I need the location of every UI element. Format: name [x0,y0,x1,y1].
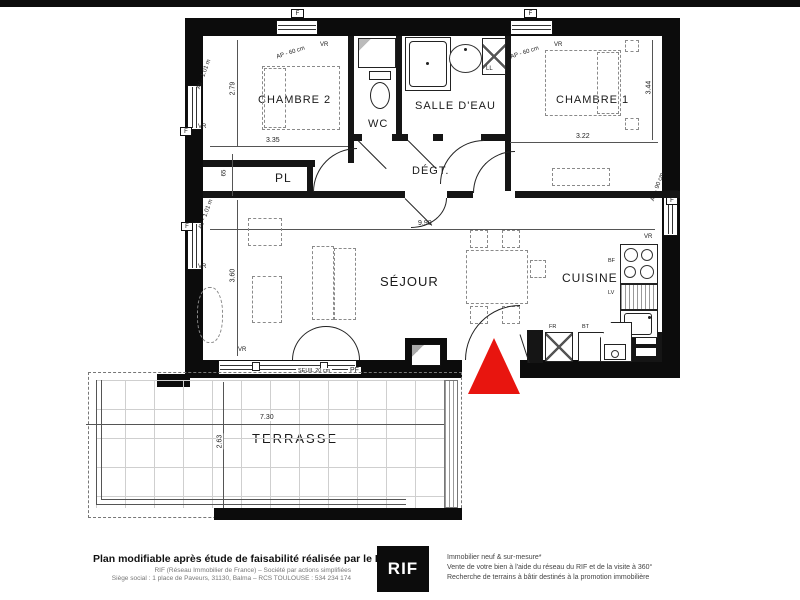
sofa-back [312,246,334,320]
floor-plan-page: F VR AP - 60 cm F VR AP - 60 cm F AV - 1… [0,0,800,600]
bay-window-handle [252,362,260,371]
footer-address-line: Siège social : 1 place de Paveurs, 31130… [93,575,351,583]
desk-chambre1 [552,168,610,186]
nightstand [625,118,639,130]
room-label-salle-deau: SALLE D'EAU [415,100,496,112]
burner-icon [640,265,654,279]
chair [530,260,546,278]
vr-label: VR [198,264,206,270]
bed-pillow-chambre1 [597,52,619,114]
dim-line [237,40,238,146]
burner-icon [624,266,636,278]
fridge [545,332,573,362]
wall-chambre2-bottom [203,160,315,167]
window-top-2 [510,20,553,35]
wall-corridor-bottom [447,191,473,198]
vr-label: VR [554,42,562,48]
window-top-2-sill2 [512,29,551,30]
sofa-seat [334,248,356,320]
dim-terrasse-depth: 2.63 [216,434,223,450]
dim-terrasse-width: 7.30 [258,414,276,421]
door-leaf-wc [358,140,387,169]
window-left-1-sill [192,87,193,128]
rif-logo-text: RIF [388,559,418,579]
tv-screen [411,344,441,366]
room-label-placard: PL [275,171,292,185]
washbasin-tap [464,48,467,51]
dim-line [237,200,238,356]
dim-chambre1-height: 3.44 [645,81,652,95]
wall-kitchen-stub [527,330,543,363]
dim-chambre2-width: 3.35 [266,137,280,144]
terrace-bottom-wall [214,508,462,520]
dim-chambre1-width: 3.22 [576,133,590,140]
wall-corridor-top [392,134,408,141]
burner-icon [641,249,653,261]
window-top-2-sill [512,25,551,26]
footer-right-block: Immobilier neuf & sur-mesure* Vente de v… [447,553,697,583]
toilet-tank [369,71,391,80]
footer-service-3: Recherche de terrains à bâtir destinés à… [447,573,697,583]
wall-corridor-bottom [203,191,405,198]
window-top-1 [276,20,318,35]
side-table [248,218,282,246]
sink-tap [648,316,651,319]
vr-label: VR [320,42,328,48]
wall-chambre2-wc [348,36,354,163]
door-arc-chambre2 [313,148,357,192]
french-door-arc-left [292,326,326,360]
rif-logo: RIF [377,546,429,592]
french-door-arc-right [326,326,360,360]
plant [197,287,223,343]
window-tag-icon: F [524,9,537,18]
dim-chambre2-height: 2.79 [229,82,236,96]
terrace-railing-inner [101,380,406,500]
room-label-wc: WC [368,118,388,130]
vr-label: VR [238,347,246,353]
shower-drain [426,62,429,65]
window-tag-icon: F [180,127,192,136]
footer-left-block: Plan modifiable après étude de faisabili… [93,553,351,583]
wall-wc-sde [396,36,402,136]
room-label-sejour: SÉJOUR [380,274,439,289]
top-border-bar [0,0,800,7]
allege-label: AP - 60 cm [510,46,540,61]
chair [502,230,520,248]
water-heater-dial-icon [611,350,619,358]
burner-icon [624,248,638,262]
dim-line [210,146,348,147]
lave-vaisselle-label: LV [608,290,614,296]
allege-label: AP - 60 cm [276,46,306,61]
window-left-2-sill2 [196,224,197,268]
wall-notch [636,348,656,356]
footer-service-2: Vente de votre bien à l'aide du réseau d… [447,563,697,573]
chair [470,230,488,248]
toilet-bowl [370,82,390,109]
wall-corridor-top [433,134,443,141]
footer-service-1: Immobilier neuf & sur-mesure* [447,553,697,563]
lave-linge-label: LL [486,66,493,72]
window-tag-icon: F [291,9,304,18]
wall-corridor-top [481,134,507,141]
footer-company-line: RIF (Réseau Immobilier de France) – Soci… [93,567,351,575]
vr-label: VR [644,234,652,240]
bed-pillow-chambre2 [264,68,286,128]
footer-headline: Plan modifiable après étude de faisabili… [93,553,351,565]
wc-shelf [358,38,396,68]
fridge-label: FR [549,324,556,330]
dim-line [510,142,658,143]
plaque-label: BF [608,258,615,264]
window-top-1-sill [278,25,316,26]
dim-line [86,424,444,425]
room-label-degagement: DÉGT. [412,165,449,177]
wall-corridor-top [348,134,362,141]
wall-top [185,18,680,36]
terrace-divider [444,380,458,508]
window-left-1-sill2 [196,87,197,128]
coffee-table [252,276,282,323]
wall-placard-right [307,160,313,191]
window-top-1-sill2 [278,29,316,30]
tech-block-label: BT [582,324,589,330]
dim-placard-depth: 65 [221,170,227,177]
dim-line [232,154,233,196]
window-tag-icon: F [181,222,193,231]
nightstand [625,40,639,52]
bay-window-rail [220,365,355,366]
wall-corridor-bottom [515,191,680,198]
vr-label: VR [198,124,206,130]
dishwasher [620,284,658,310]
dim-sejour-width: 9.90 [418,220,432,227]
bay-window-rail2 [220,369,355,370]
dim-sejour-height: 3.60 [229,269,236,283]
room-label-cuisine: CUISINE [562,271,618,285]
dining-table [466,250,528,304]
entrance-arrow-icon [468,338,520,394]
